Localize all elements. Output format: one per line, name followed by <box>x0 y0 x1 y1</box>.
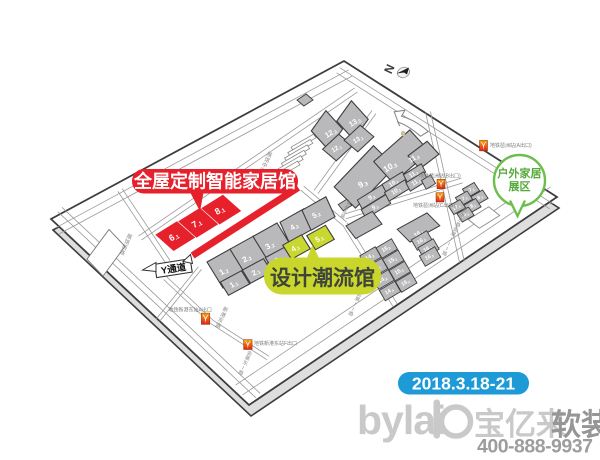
svg-text:地铁琶洲站(A出口): 地铁琶洲站(A出口) <box>490 142 532 149</box>
svg-text:2018.3.18-21: 2018.3.18-21 <box>412 374 515 394</box>
svg-text:全屋定制智能家居馆: 全屋定制智能家居馆 <box>133 171 296 192</box>
svg-text:户外家居: 户外家居 <box>498 166 542 180</box>
svg-text:地铁新港东站F出口: 地铁新港东站F出口 <box>254 340 297 347</box>
svg-text:地铁琶洲站(B出口): 地铁琶洲站(B出口) <box>419 173 461 180</box>
svg-text:展区: 展区 <box>508 180 531 193</box>
svg-text:设计潮流馆: 设计潮流馆 <box>270 266 375 290</box>
svg-text:地铁琶洲站(C出口): 地铁琶洲站(C出口) <box>413 202 455 209</box>
svg-text:地铁新港东站A出口: 地铁新港东站A出口 <box>169 307 212 314</box>
svg-text:bylai: bylai <box>357 397 445 443</box>
svg-text:400-888-9937: 400-888-9937 <box>477 436 592 458</box>
